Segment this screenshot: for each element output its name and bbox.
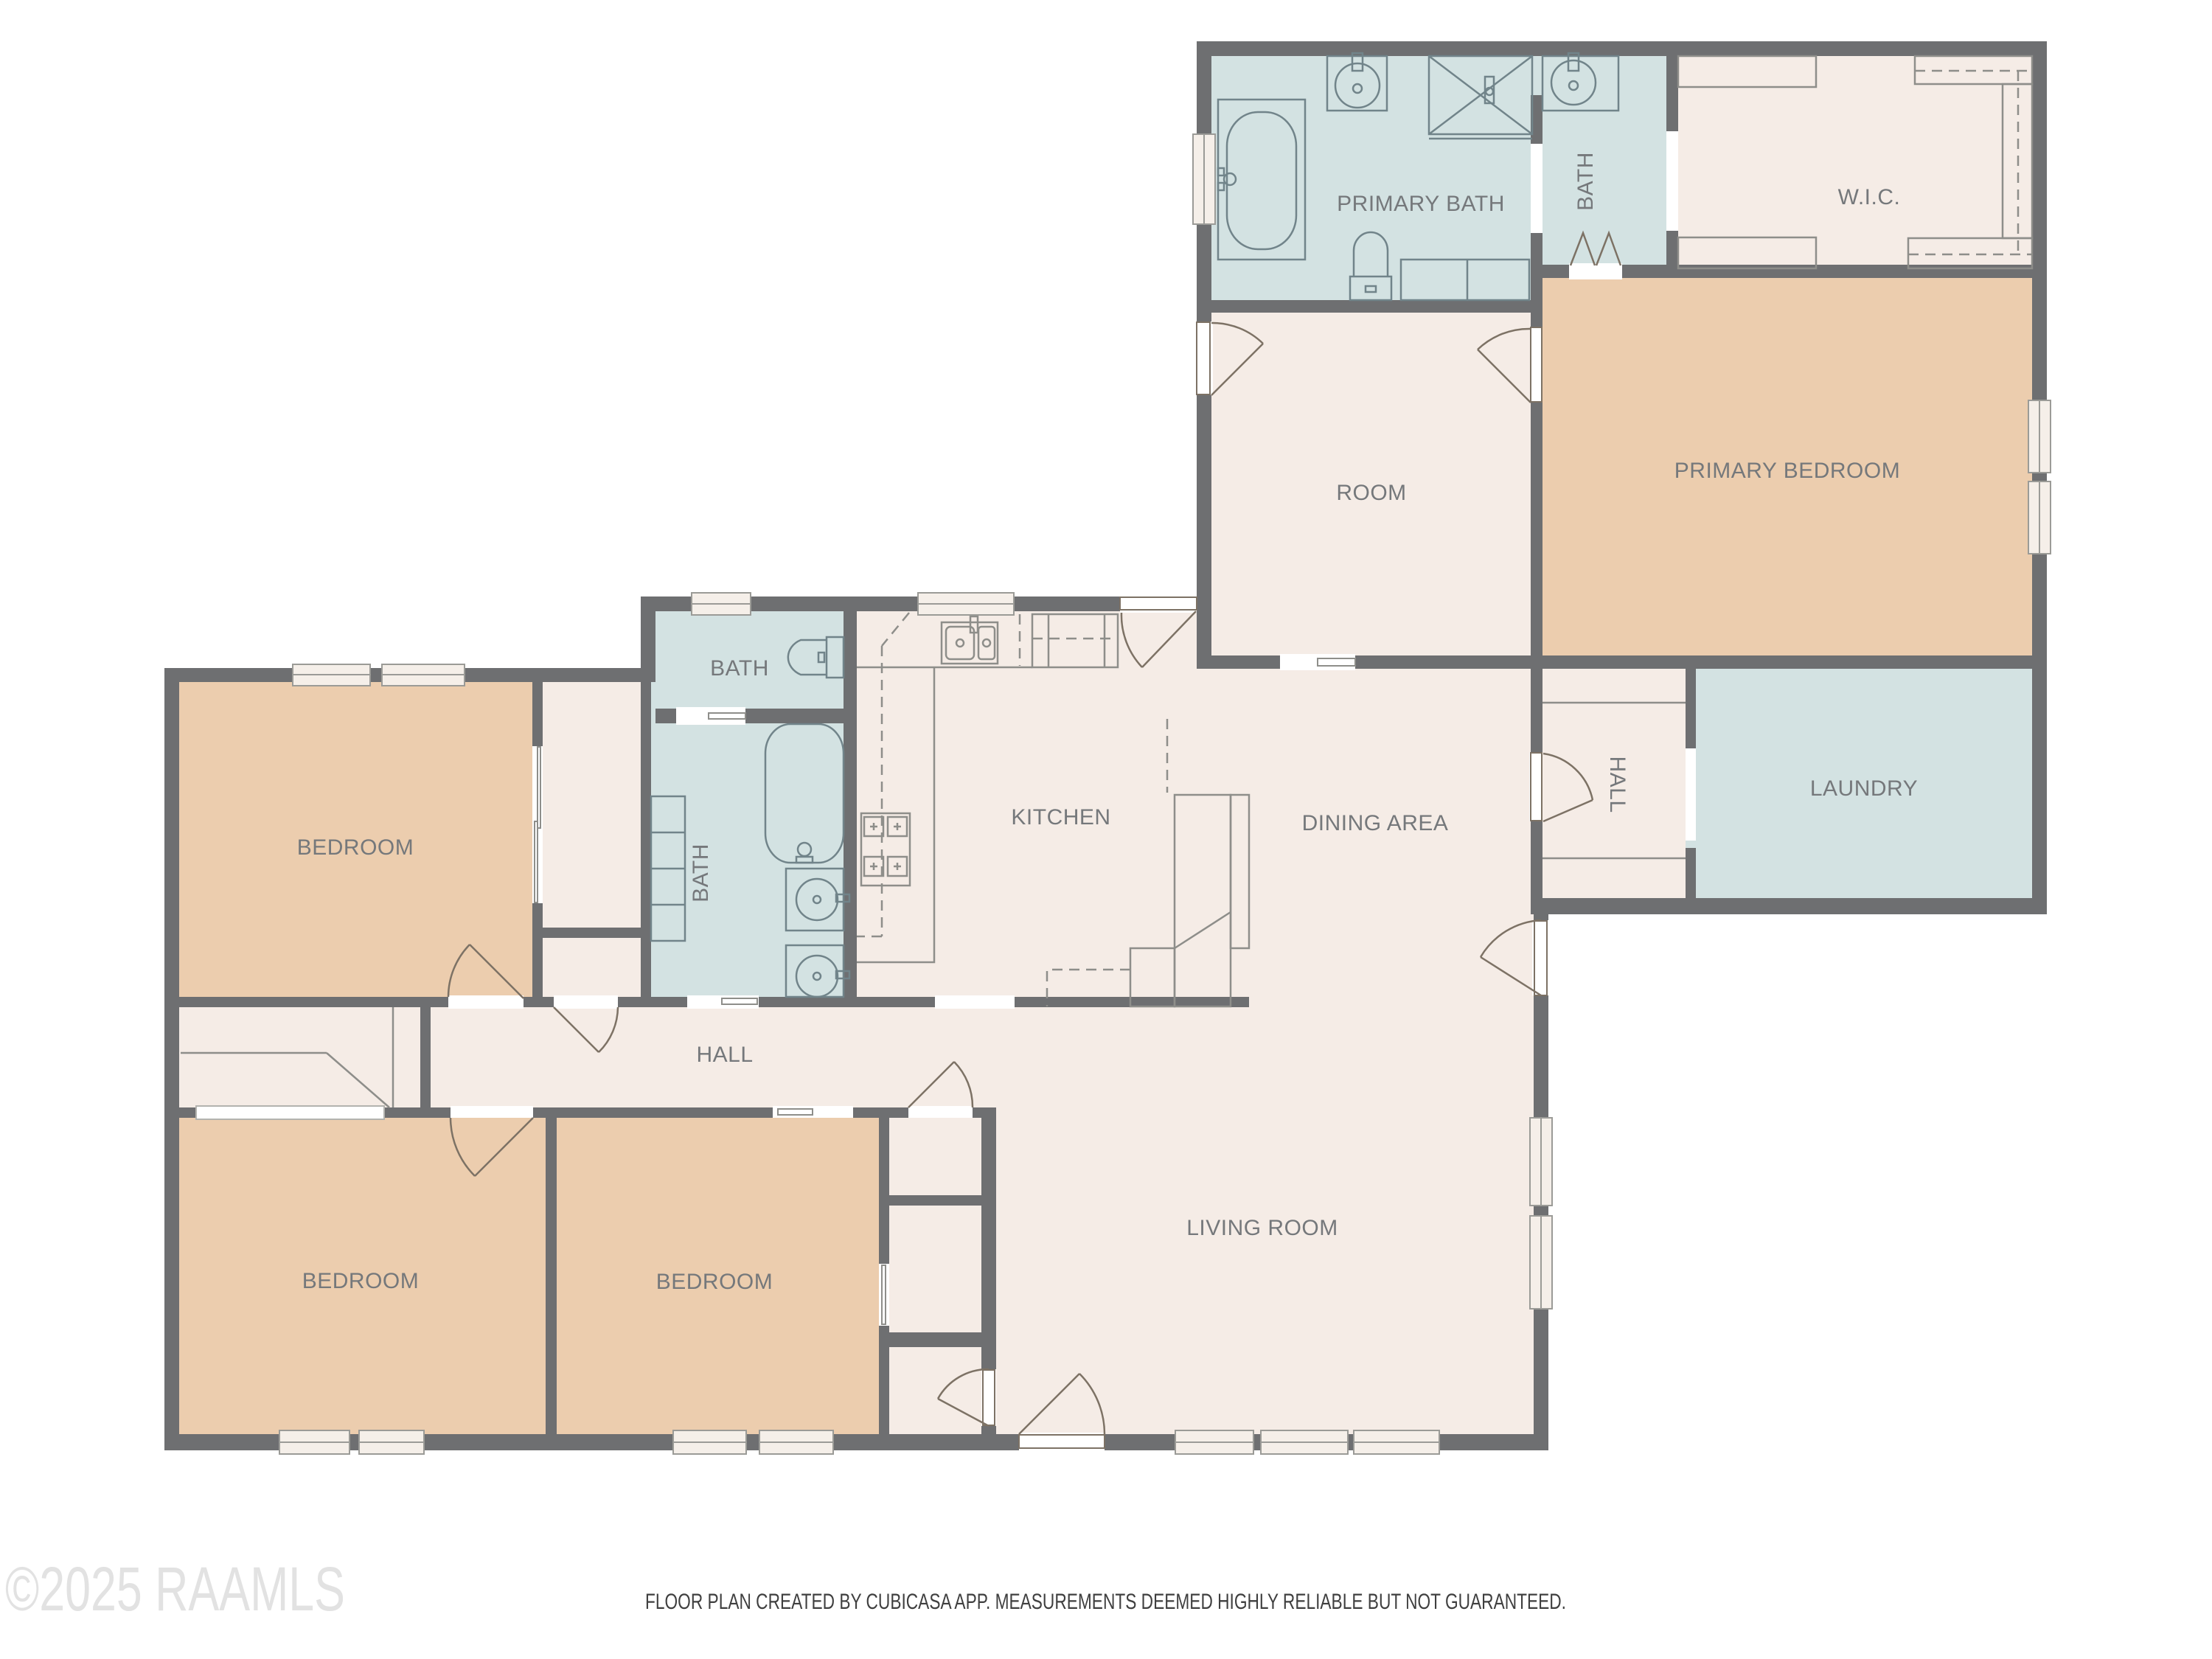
svg-text:BEDROOM: BEDROOM (656, 1270, 773, 1294)
svg-text:BATH: BATH (710, 656, 769, 681)
svg-text:PRIMARY BATH: PRIMARY BATH (1337, 192, 1505, 216)
svg-text:ROOM: ROOM (1336, 481, 1406, 505)
svg-text:LIVING ROOM: LIVING ROOM (1186, 1216, 1338, 1240)
svg-text:KITCHEN: KITCHEN (1011, 805, 1110, 829)
svg-text:BEDROOM: BEDROOM (302, 1269, 420, 1293)
svg-text:©2025 RAAMLS: ©2025 RAAMLS (5, 1554, 345, 1624)
svg-text:HALL: HALL (696, 1043, 753, 1067)
svg-text:FLOOR PLAN CREATED BY CUBICASA: FLOOR PLAN CREATED BY CUBICASA APP. MEAS… (645, 1590, 1566, 1614)
svg-text:LAUNDRY: LAUNDRY (1810, 776, 1918, 801)
svg-text:PRIMARY BEDROOM: PRIMARY BEDROOM (1674, 459, 1900, 483)
svg-text:BATH: BATH (689, 844, 713, 902)
svg-text:BATH: BATH (1573, 152, 1598, 211)
svg-text:W.I.C.: W.I.C. (1838, 185, 1901, 209)
svg-text:BEDROOM: BEDROOM (297, 835, 414, 860)
svg-text:HALL: HALL (1605, 756, 1630, 813)
svg-text:DINING AREA: DINING AREA (1302, 811, 1449, 835)
